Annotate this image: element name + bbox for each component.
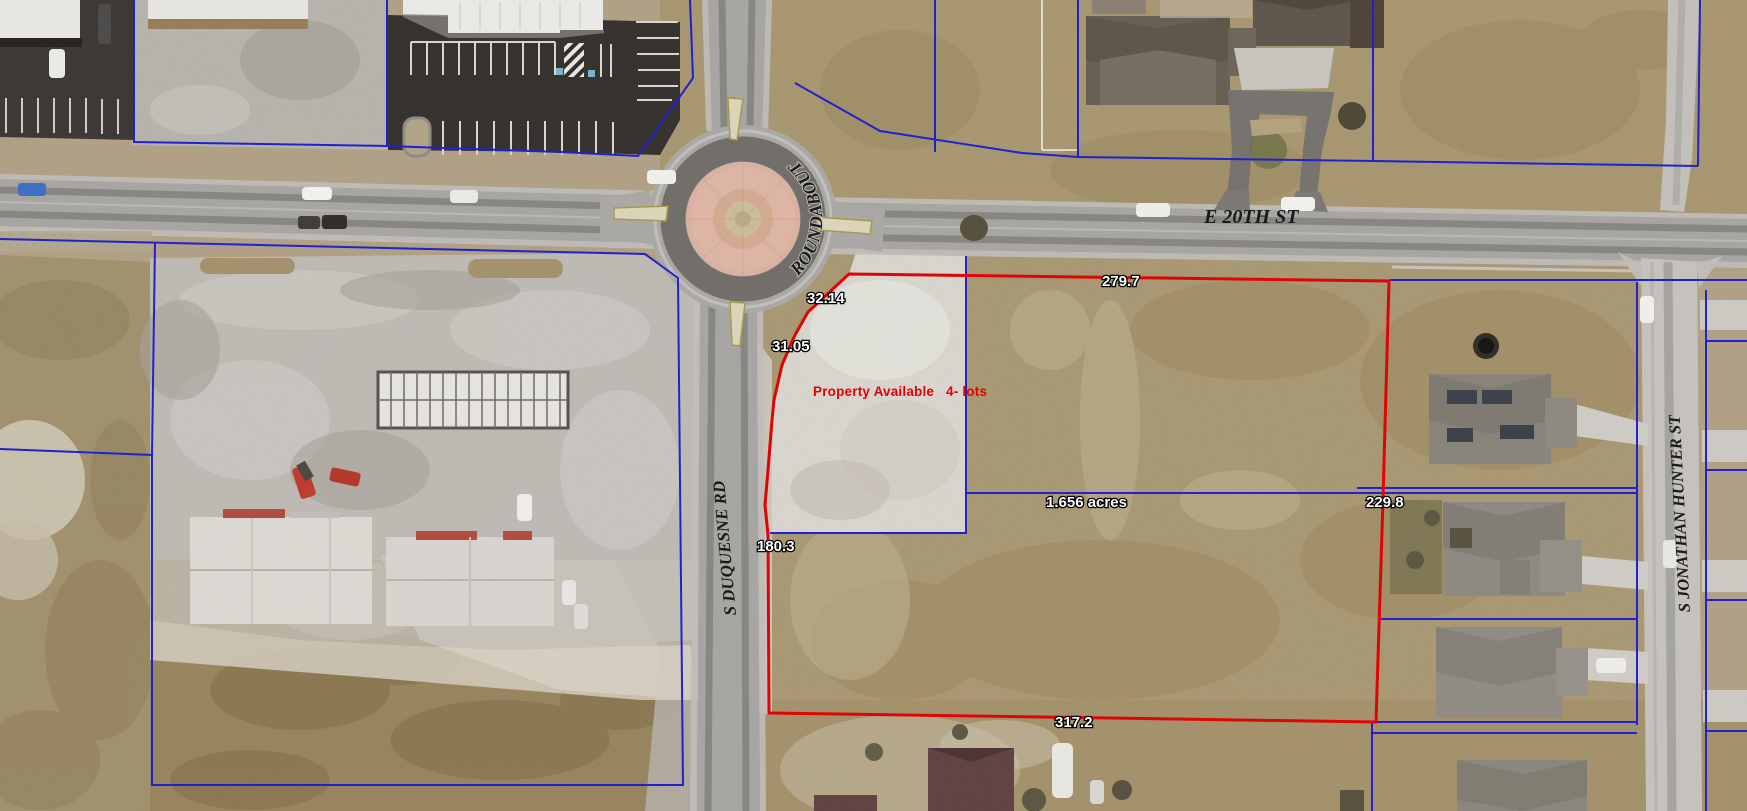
svg-text:279.7: 279.7 <box>1102 273 1140 290</box>
svg-text:E 20TH ST: E 20TH ST <box>1203 206 1299 228</box>
svg-text:1.656 acres: 1.656 acres <box>1046 494 1127 511</box>
svg-text:32.14: 32.14 <box>807 290 845 307</box>
svg-text:31.05: 31.05 <box>772 338 810 355</box>
svg-text:317.2: 317.2 <box>1055 714 1093 731</box>
svg-text:180.3: 180.3 <box>757 538 795 555</box>
svg-text:229.8: 229.8 <box>1366 494 1404 511</box>
svg-text:Property Available 4- lots: Property Available 4- lots <box>813 384 987 399</box>
